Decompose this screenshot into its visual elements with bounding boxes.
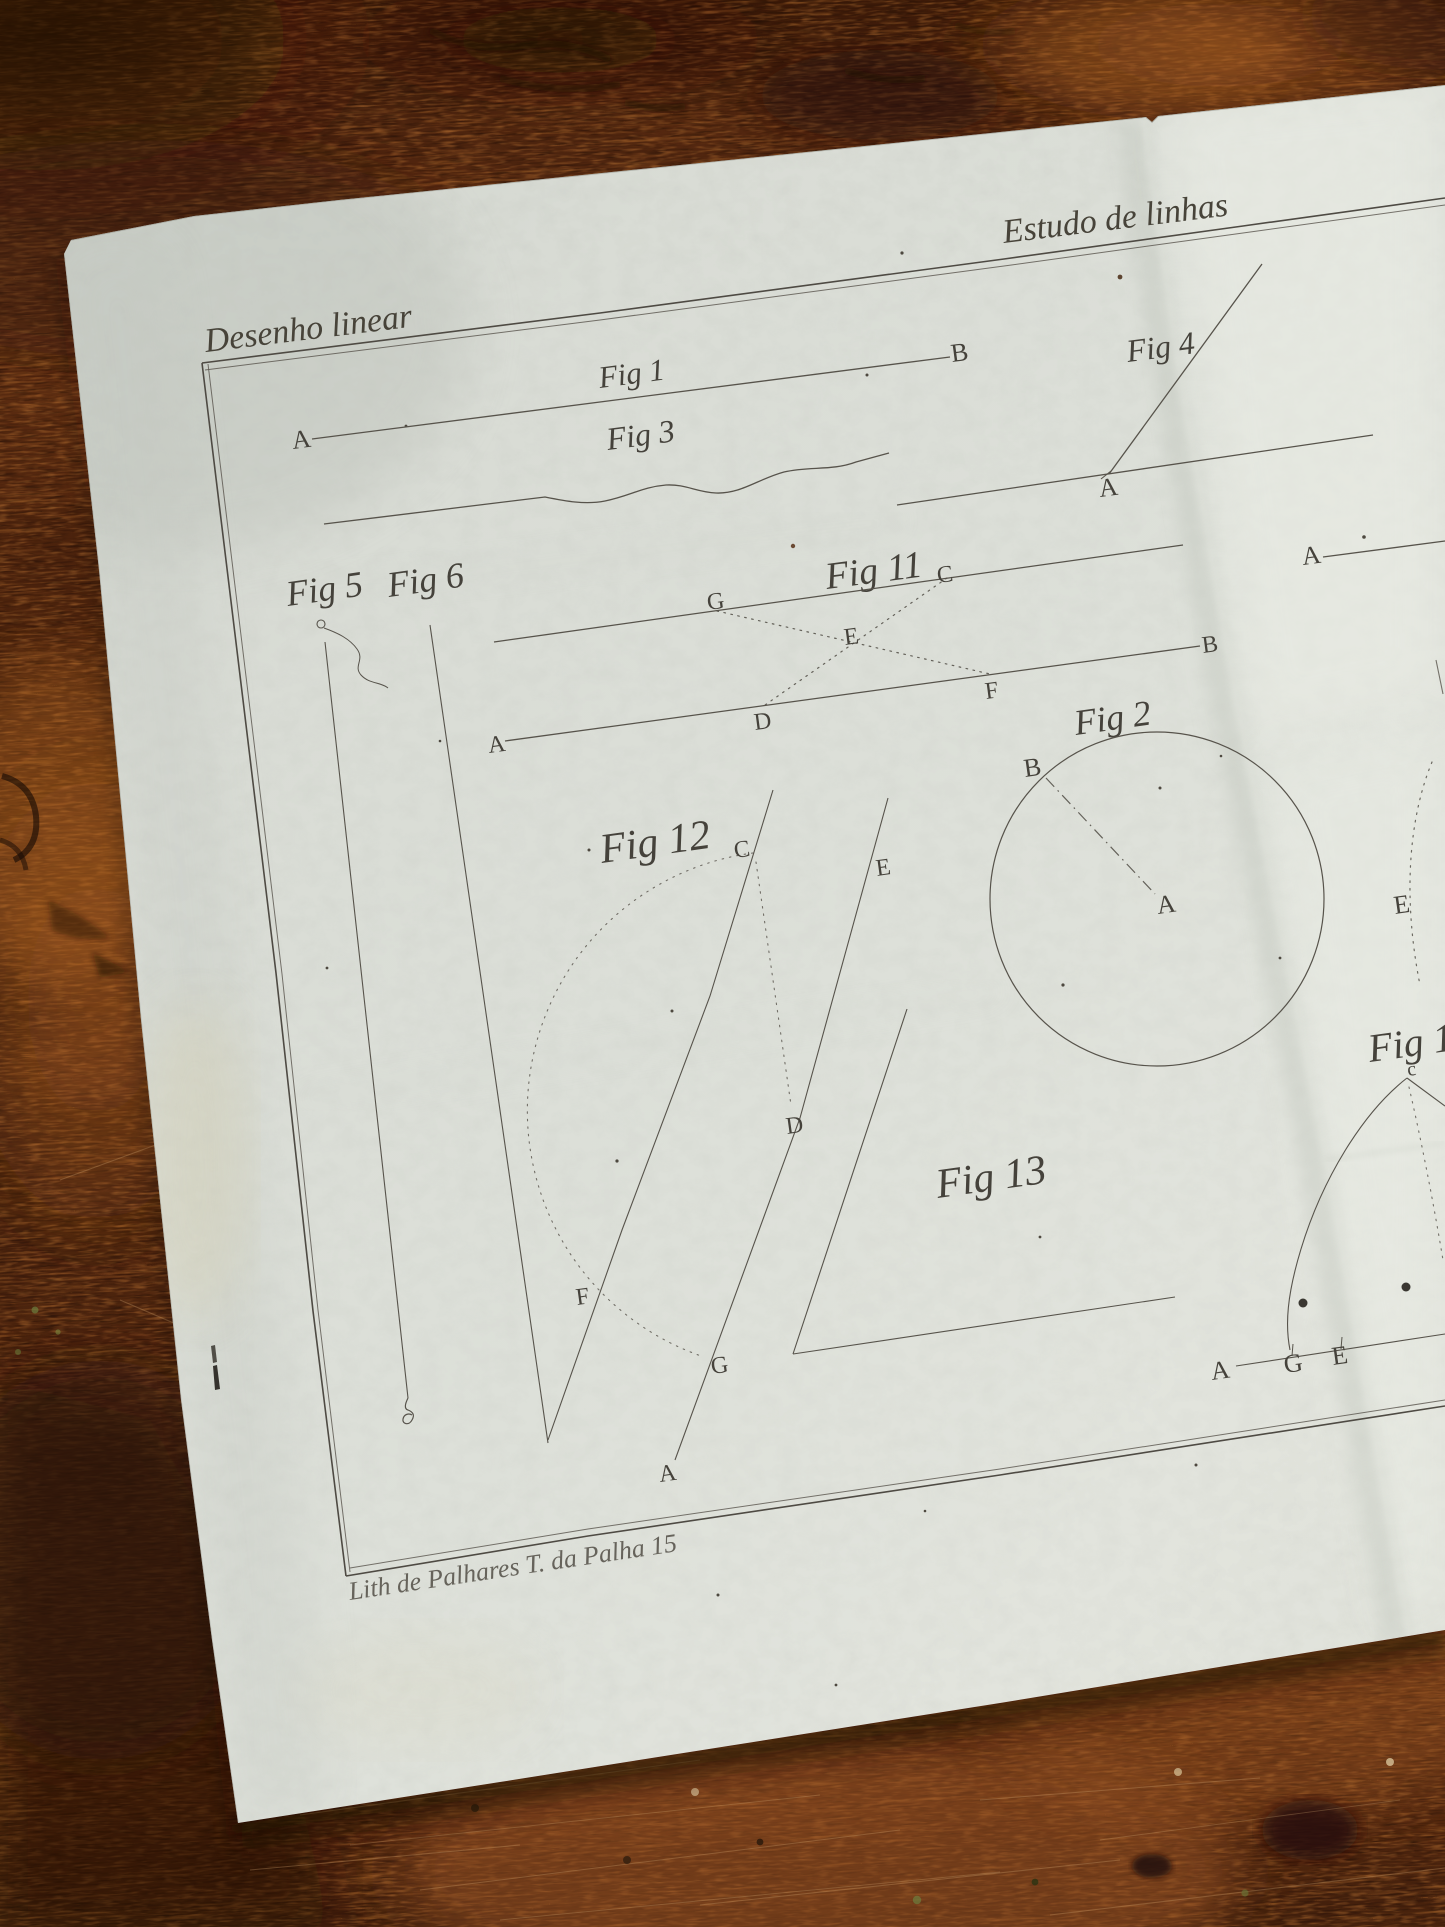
svg-text:G: G <box>1282 1348 1305 1379</box>
svg-text:C: C <box>935 561 954 589</box>
svg-text:D: D <box>784 1112 805 1140</box>
svg-text:G: G <box>709 1352 730 1380</box>
svg-text:D: D <box>752 708 773 736</box>
svg-text:G: G <box>705 588 726 616</box>
svg-text:A: A <box>1300 540 1323 571</box>
svg-text:B: B <box>1200 631 1219 659</box>
svg-text:A: A <box>290 424 313 455</box>
svg-text:A: A <box>1097 472 1120 503</box>
